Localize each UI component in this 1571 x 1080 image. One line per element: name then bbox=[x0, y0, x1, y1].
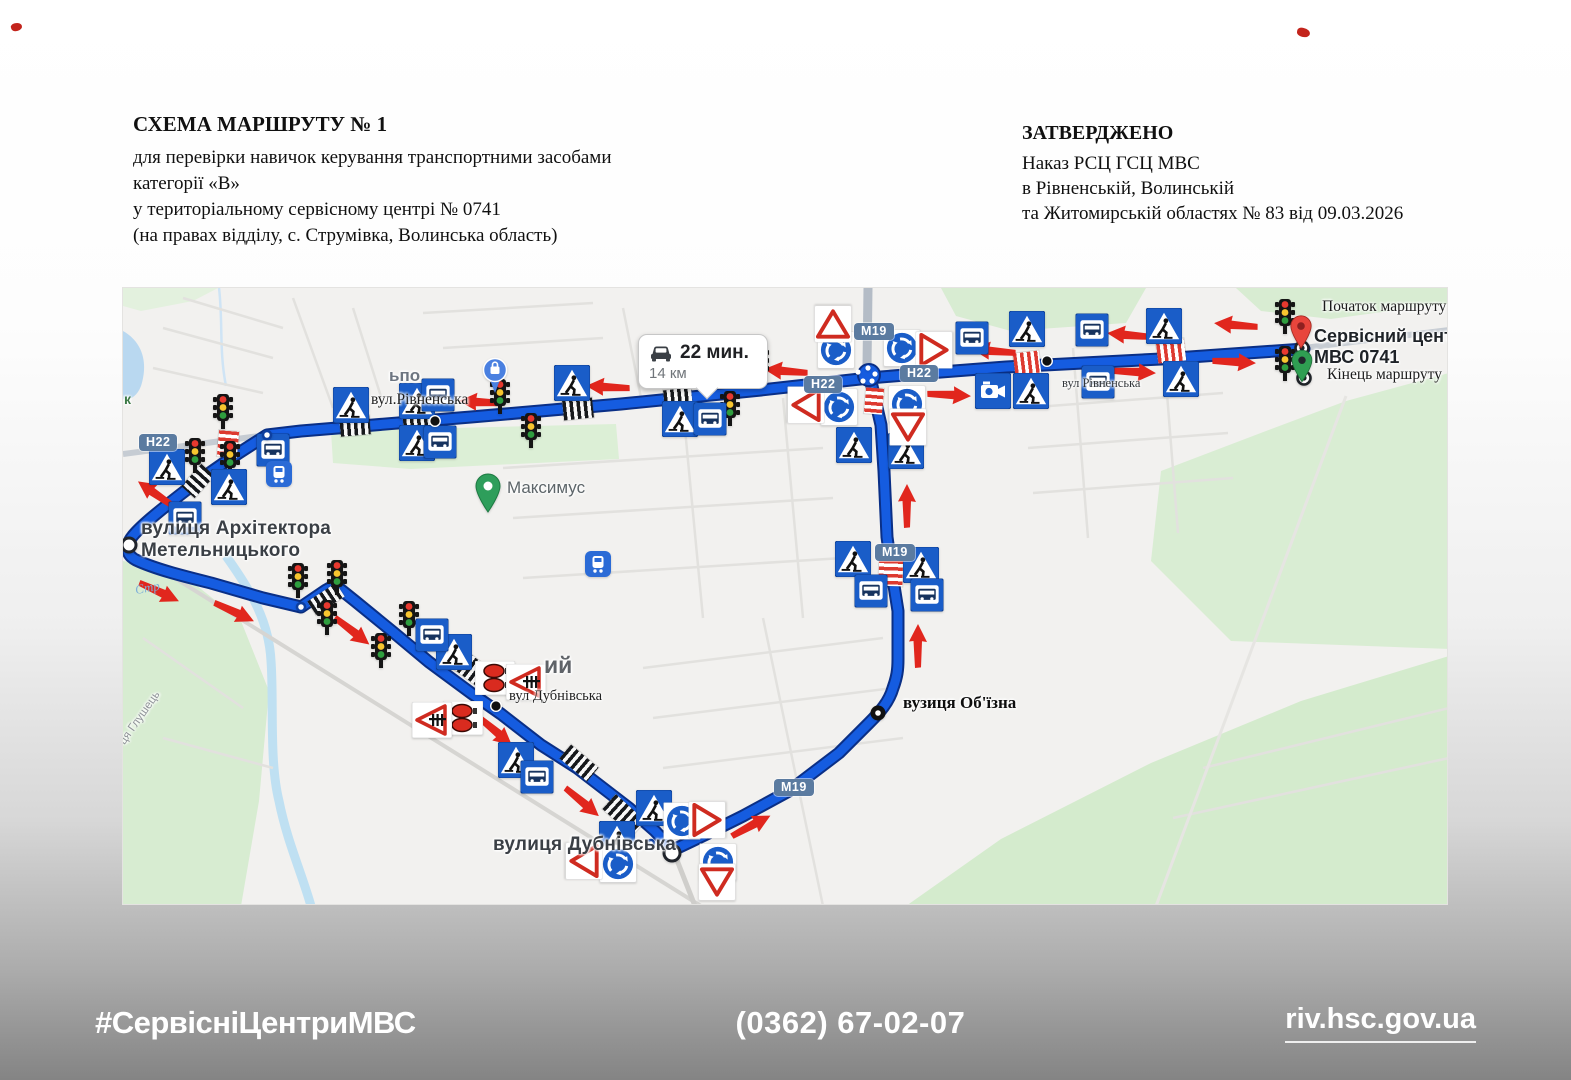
footer-website-link[interactable]: riv.hsc.gov.ua bbox=[1285, 1003, 1476, 1043]
yield-sign bbox=[699, 864, 736, 901]
bus-stop-sign bbox=[855, 575, 888, 608]
approval-header: ЗАТВЕРДЖЕНО Наказ РСЦ ГСЦ МВС в Рівненсь… bbox=[1022, 122, 1403, 226]
pedestrian-crossing-sign bbox=[836, 427, 872, 463]
footer-bar: #СервісніЦентриМВС (0362) 67-02-07 riv.h… bbox=[0, 988, 1571, 1058]
route-duration: 22 мин. bbox=[680, 342, 749, 364]
map-label: вулиця Архітектора bbox=[141, 518, 331, 540]
route-node bbox=[122, 536, 139, 555]
yield-sign bbox=[689, 802, 726, 839]
direction-arrow bbox=[909, 624, 928, 668]
junction-dot bbox=[872, 371, 878, 377]
footer-hashtag: #СервісніЦентриМВС bbox=[95, 1005, 416, 1041]
pedestrian-crossing-sign bbox=[1013, 373, 1049, 409]
direction-arrow bbox=[1106, 324, 1151, 347]
red-mark-left bbox=[10, 22, 23, 33]
bus-stop-sign bbox=[424, 426, 457, 459]
approval-line: в Рівненській, Волинській bbox=[1022, 176, 1403, 201]
route-node-black bbox=[870, 705, 887, 722]
approval-line: та Житомирській областях № 83 від 09.03.… bbox=[1022, 201, 1403, 226]
traffic-light-icon bbox=[520, 413, 542, 449]
traffic-light-icon bbox=[370, 633, 392, 669]
pedestrian-crossing-sign bbox=[1163, 361, 1199, 397]
map-label: вул Дубнівська bbox=[509, 688, 602, 705]
direction-arrow bbox=[1213, 314, 1258, 337]
scheme-subtitle-line: (на правах відділу, с. Струмівка, Волинс… bbox=[133, 223, 612, 249]
junction-dot bbox=[855, 369, 861, 375]
route-end-pin bbox=[1290, 350, 1315, 383]
approval-title: ЗАТВЕРДЖЕНО bbox=[1022, 122, 1403, 145]
direction-arrow bbox=[763, 360, 808, 383]
direction-arrow bbox=[1212, 351, 1257, 372]
bus-stop-sign bbox=[694, 403, 727, 436]
red-white-crossing bbox=[864, 387, 884, 414]
camera-sign bbox=[975, 373, 1011, 409]
approval-line: Наказ РСЦ ГСЦ МВС bbox=[1022, 151, 1403, 176]
route-dot bbox=[429, 415, 442, 428]
pedestrian-crossing-sign bbox=[554, 365, 590, 401]
yield-sign bbox=[815, 306, 852, 343]
pedestrian-crossing-sign bbox=[835, 541, 871, 577]
pedestrian-crossing-sign bbox=[149, 449, 185, 485]
direction-arrow bbox=[927, 384, 972, 405]
transit-station-icon bbox=[266, 461, 292, 487]
red-white-crossing bbox=[1013, 350, 1041, 375]
route-shield: Н22 bbox=[804, 376, 842, 393]
transit-station-icon bbox=[585, 551, 611, 577]
route-node bbox=[261, 429, 274, 442]
poi-pin-green bbox=[473, 473, 503, 513]
rail-crossing-sign bbox=[412, 702, 452, 738]
traffic-light-icon bbox=[287, 563, 309, 599]
yield-sign bbox=[916, 332, 953, 369]
scheme-subtitle-line: у територіальному сервісному центрі № 07… bbox=[133, 197, 612, 223]
poi-pin-blue bbox=[480, 357, 510, 395]
map-label: Максимус bbox=[507, 478, 585, 498]
route-dot bbox=[490, 700, 503, 713]
map-label: ьпо bbox=[389, 366, 420, 386]
traffic-light-icon bbox=[184, 438, 206, 474]
traffic-light-icon bbox=[326, 560, 348, 596]
route-shield: М19 bbox=[774, 779, 814, 796]
scheme-title: СХЕМА МАРШРУТУ № 1 bbox=[133, 112, 612, 137]
map-label: Сервісний центр bbox=[1314, 326, 1448, 347]
bus-stop-sign bbox=[956, 322, 989, 355]
map-label: Початок маршруту bbox=[1322, 298, 1446, 316]
route-dot bbox=[1041, 355, 1054, 368]
map-label: Метельницького bbox=[141, 540, 300, 562]
map-label: МВС 0741 bbox=[1314, 347, 1399, 368]
yield-sign bbox=[890, 409, 927, 446]
pedestrian-crossing-sign bbox=[1009, 311, 1045, 347]
scheme-subtitle-line: категорії «В» bbox=[133, 171, 612, 197]
footer-phone: (0362) 67-02-07 bbox=[736, 1005, 966, 1041]
route-shield: Н22 bbox=[900, 365, 938, 382]
red-mark-right bbox=[1296, 27, 1310, 38]
route-distance: 14 км bbox=[649, 365, 757, 382]
bus-stop-sign bbox=[911, 579, 944, 612]
junction-dot bbox=[860, 378, 866, 384]
map-label: вул.Рівненська bbox=[371, 391, 468, 409]
bus-stop-sign bbox=[1076, 314, 1109, 347]
traffic-light-icon bbox=[316, 600, 338, 636]
traffic-light-icon bbox=[212, 394, 234, 430]
pedestrian-crossing-sign bbox=[333, 387, 369, 423]
route-shield: М19 bbox=[854, 323, 894, 340]
scheme-header: СХЕМА МАРШРУТУ № 1 для перевірки навичок… bbox=[133, 112, 612, 249]
pedestrian-crossing-sign bbox=[1146, 308, 1182, 344]
pedestrian-crossing-sign bbox=[211, 469, 247, 505]
route-info-tooltip: 22 мин. 14 км bbox=[638, 334, 768, 389]
junction-dot bbox=[869, 378, 875, 384]
route-map: 22 мин. 14 км Н22Н22Н22М19М19М19вул.Рівн… bbox=[122, 287, 1448, 905]
car-icon bbox=[649, 345, 673, 362]
direction-arrow bbox=[586, 376, 631, 397]
map-label: ий bbox=[544, 652, 572, 679]
direction-arrow bbox=[898, 484, 917, 528]
route-shield: М19 bbox=[875, 544, 915, 561]
scheme-subtitle-line: для перевірки навичок керування транспор… bbox=[133, 145, 612, 171]
route-node bbox=[295, 601, 308, 614]
route-start-pin bbox=[1288, 315, 1314, 349]
map-label: вузиця Об'їзна bbox=[903, 693, 1016, 713]
map-label: Кінець маршруту bbox=[1327, 366, 1442, 384]
junction-dot bbox=[865, 365, 871, 371]
map-label: вул Рівненська bbox=[1062, 376, 1140, 391]
bus-stop-sign bbox=[416, 619, 449, 652]
map-label: вулиця Дубнівська bbox=[493, 834, 676, 856]
roundabout-sign bbox=[821, 389, 858, 426]
bus-stop-sign bbox=[521, 761, 554, 794]
route-shield: Н22 bbox=[139, 434, 177, 451]
map-label: к bbox=[124, 391, 131, 407]
